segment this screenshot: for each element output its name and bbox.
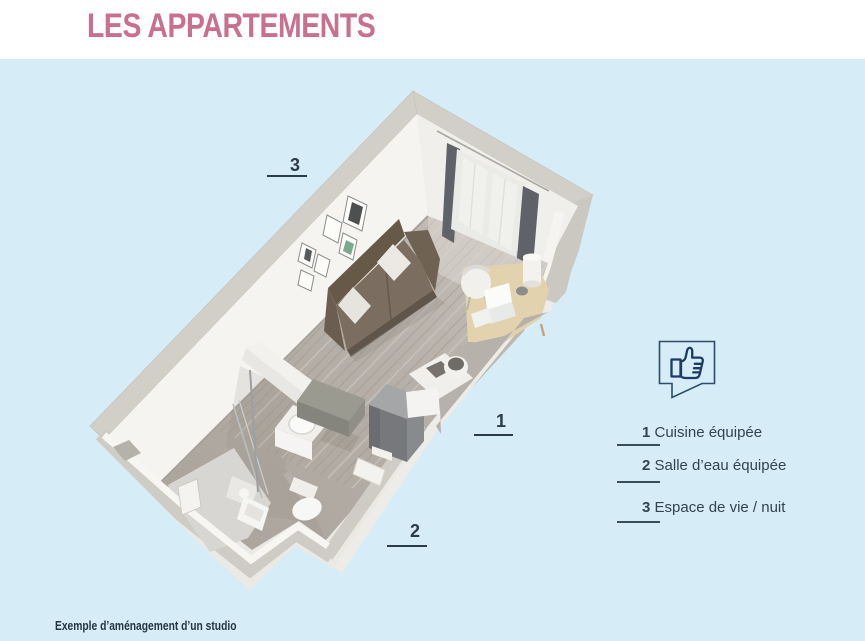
svg-text:2: 2 <box>410 521 420 541</box>
svg-text:3: 3 <box>290 155 300 175</box>
svg-text:1: 1 <box>496 411 506 431</box>
